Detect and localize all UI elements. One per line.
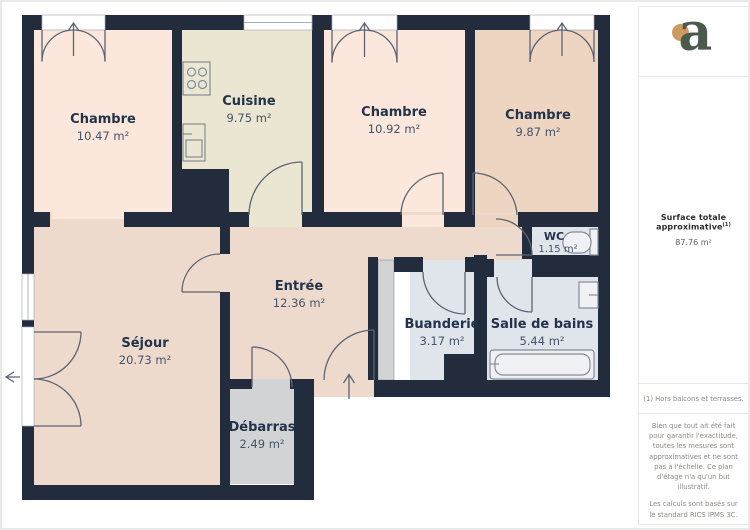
room-area: 9.75 m²	[226, 111, 271, 125]
doorway-floor	[249, 212, 302, 227]
french-door-gap	[22, 327, 34, 426]
doorway-floor	[402, 215, 444, 227]
room-name: Chambre	[505, 108, 571, 123]
room-name: Salle de bains	[491, 317, 594, 332]
logo-box: a	[638, 6, 749, 77]
doorway-floor	[252, 379, 292, 389]
footnote-text: (1) Hors balcons et terrasses.	[643, 395, 743, 403]
room-name: Séjour	[121, 336, 169, 351]
window	[244, 15, 312, 30]
total-surface-box: Surface totale approximative(1) 87.76 m²	[638, 76, 749, 384]
room-area: 10.92 m²	[368, 122, 420, 136]
room-name: Buanderie	[405, 317, 480, 332]
surface-label: Surface totale approximative(1)	[645, 213, 742, 232]
room-area: 2.49 m²	[239, 437, 284, 451]
doorway-floor	[52, 212, 124, 219]
disclaimer-text: Bien que tout ait été fait pour garantir…	[646, 421, 741, 492]
room-name: Chambre	[361, 105, 427, 120]
room-name: Cuisine	[222, 94, 276, 109]
floor-plan: Chambre 10.47 m² Cuisine 9.75 m² Chambre…	[2, 2, 632, 530]
logo-letter: a	[679, 2, 713, 64]
standard-text: Les calculs sont basés sur le standard R…	[646, 499, 741, 519]
room-area: 9.87 m²	[515, 125, 560, 139]
duct-shaft	[378, 260, 394, 380]
doorway-floor	[475, 215, 518, 227]
bathtub-icon	[490, 350, 594, 379]
window	[22, 274, 34, 320]
washbasin-icon	[579, 282, 598, 308]
room-name: Chambre	[70, 112, 136, 127]
room-area: 3.17 m²	[419, 334, 464, 348]
disclaimer-box: Bien que tout ait été fait pour garantir…	[638, 413, 749, 525]
room-name: Entrée	[275, 279, 324, 294]
room-area: 12.36 m²	[273, 296, 325, 310]
entrance-threshold	[310, 380, 374, 397]
footnote-box: (1) Hors balcons et terrasses.	[638, 383, 749, 414]
surface-value: 87.76 m²	[675, 238, 711, 247]
surface-footnote-ref: (1)	[723, 222, 731, 228]
floor-plan-page: Chambre 10.47 m² Cuisine 9.75 m² Chambre…	[0, 0, 750, 530]
info-sidebar: a Surface totale approximative(1) 87.76 …	[638, 6, 749, 525]
room-name: Débarras	[228, 420, 295, 435]
agency-logo: a	[672, 16, 716, 68]
room-area: 5.44 m²	[519, 334, 564, 348]
room-name: WC	[544, 230, 564, 243]
surface-label-text: Surface totale approximative	[656, 213, 726, 232]
room-area: 20.73 m²	[119, 353, 171, 367]
room-area: 10.47 m²	[77, 129, 129, 143]
direction-arrow-icon	[6, 372, 20, 382]
room-area: 1.15 m²	[538, 244, 577, 255]
